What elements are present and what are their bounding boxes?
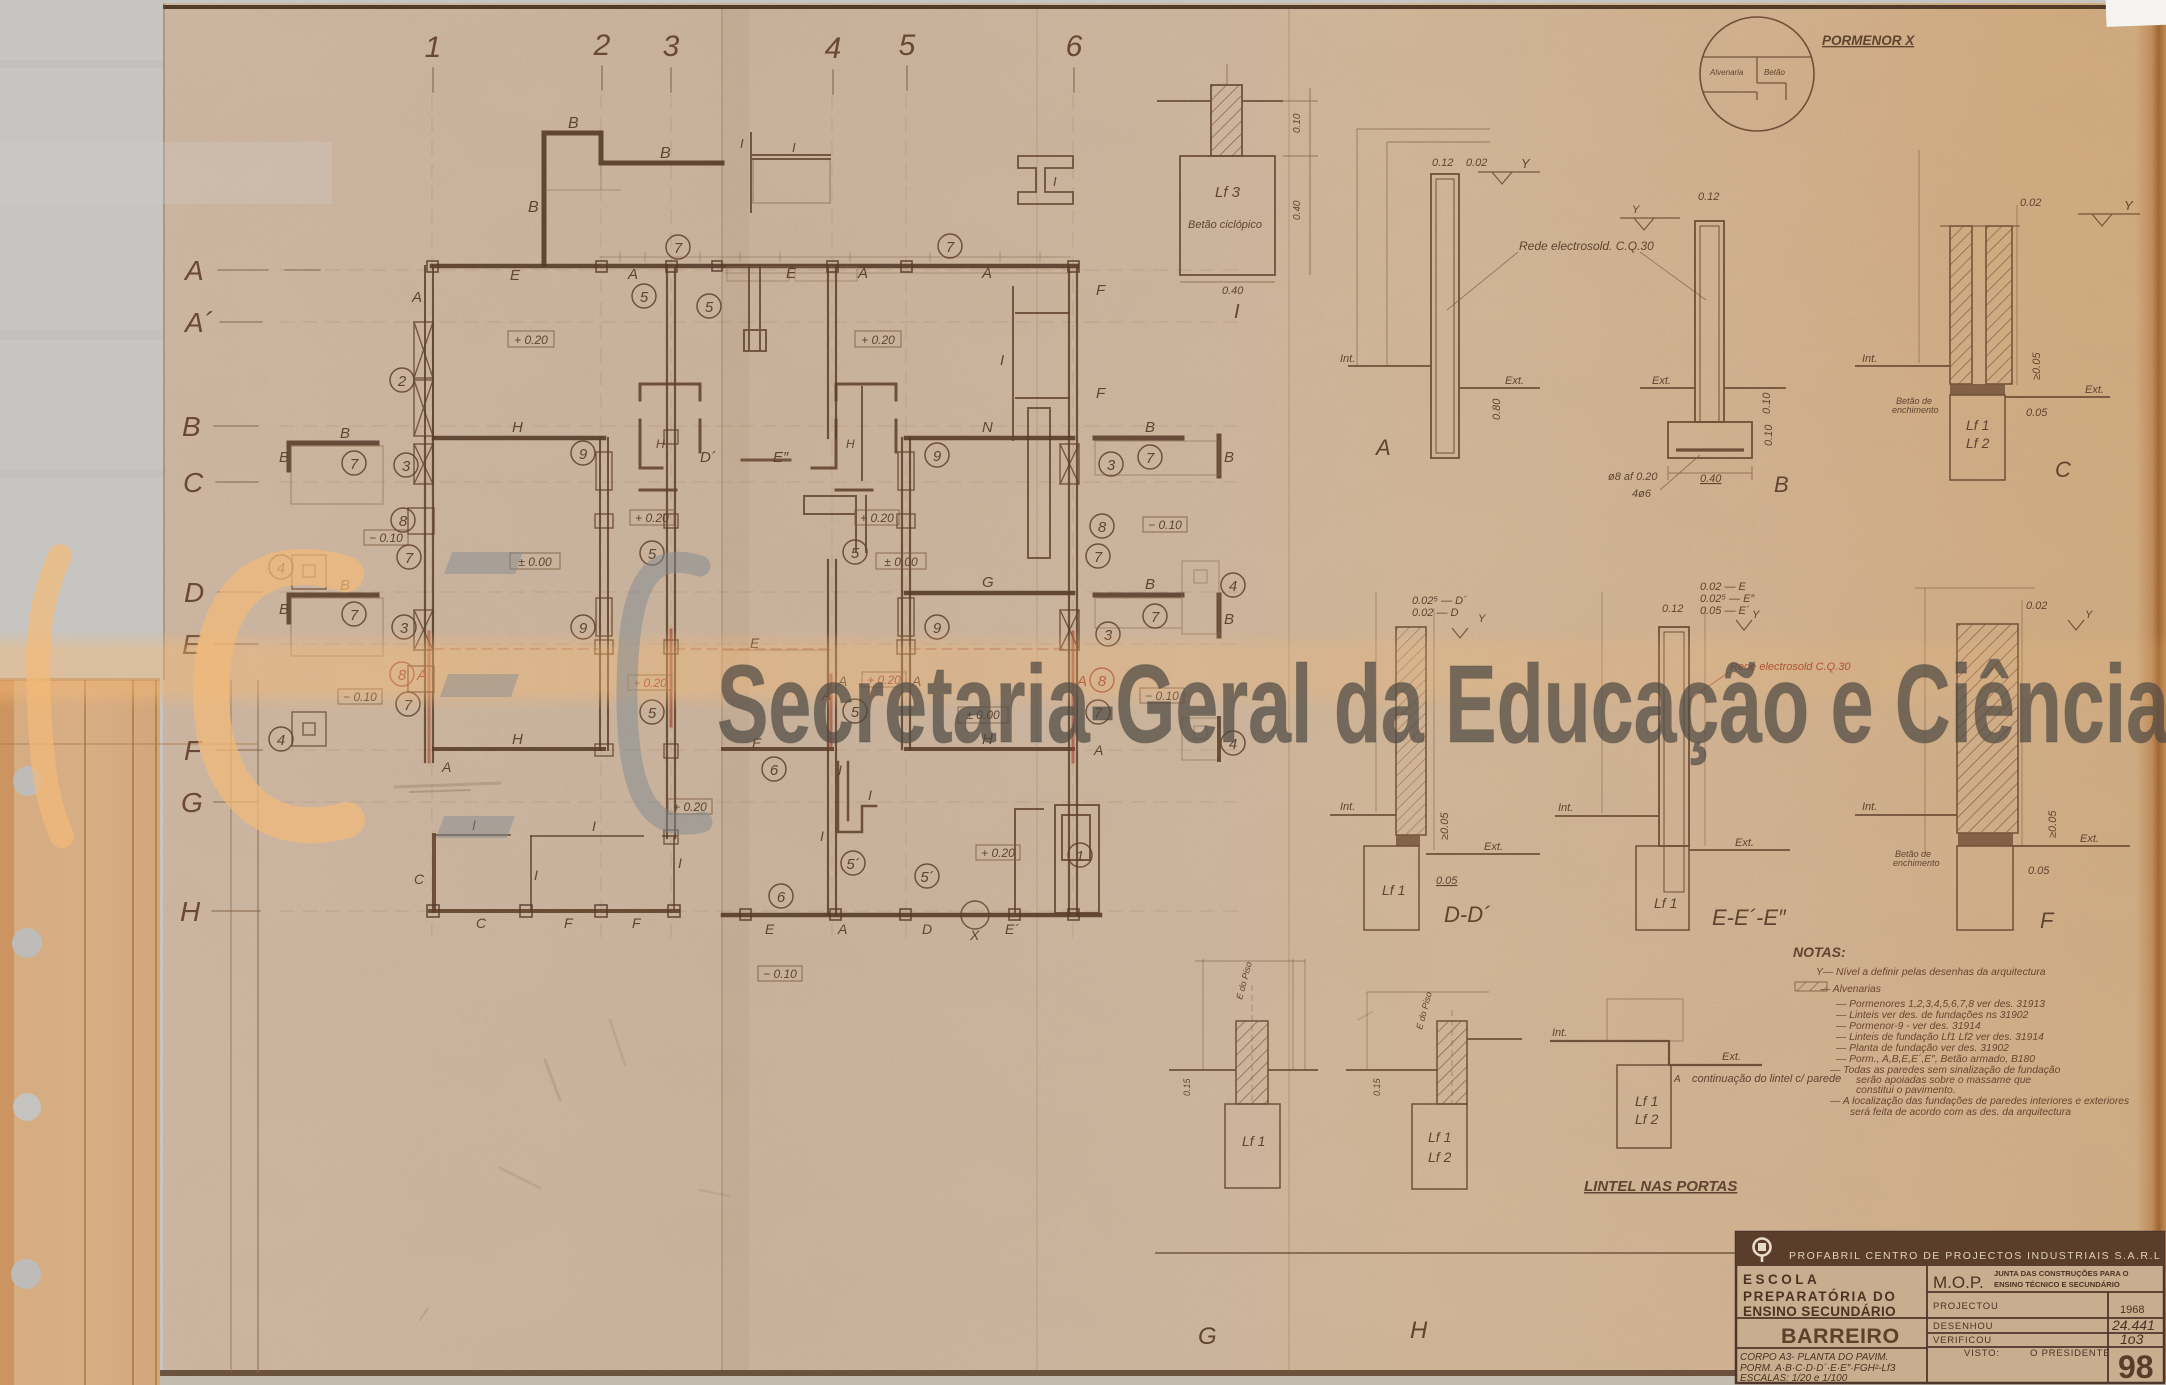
svg-text:5´: 5´ (920, 869, 933, 886)
svg-text:B: B (1145, 419, 1155, 436)
svg-text:− 0.10: − 0.10 (369, 531, 403, 545)
svg-text:Alvenaria: Alvenaria (1709, 68, 1744, 77)
svg-text:D´: D´ (700, 449, 716, 466)
svg-text:0.05: 0.05 (2026, 407, 2048, 419)
svg-text:B: B (528, 199, 539, 216)
svg-text:0.02 — E: 0.02 — E (1700, 581, 1747, 593)
svg-text:— Planta de fundação ver des.: — Planta de fundação ver des. 31902 (1835, 1043, 2009, 1054)
svg-text:+ 0.20: + 0.20 (514, 333, 548, 347)
svg-text:— Porm., A,B,E,E´,E″, Betão ar: — Porm., A,B,E,E´,E″, Betão armado, B180 (1835, 1053, 2035, 1065)
svg-text:5: 5 (899, 29, 916, 62)
svg-text:G: G (982, 574, 994, 591)
svg-text:8: 8 (1098, 519, 1107, 536)
svg-text:Lf 2: Lf 2 (1428, 1149, 1452, 1165)
svg-text:− 0.10: − 0.10 (1148, 518, 1182, 532)
svg-text:Lf 2: Lf 2 (1635, 1111, 1659, 1127)
svg-text:A: A (1673, 1074, 1681, 1085)
svg-text:C: C (476, 915, 487, 931)
svg-text:F: F (2040, 908, 2055, 933)
svg-text:Lf 1: Lf 1 (1635, 1093, 1658, 1109)
svg-text:Ext.: Ext. (1652, 375, 1671, 387)
svg-text:I: I (1053, 174, 1057, 189)
svg-text:Int.: Int. (1862, 801, 1877, 813)
svg-text:9: 9 (933, 448, 942, 465)
svg-text:0.40: 0.40 (1700, 473, 1722, 485)
svg-text:3: 3 (663, 30, 680, 63)
svg-text:7: 7 (946, 239, 955, 256)
svg-text:7: 7 (1094, 549, 1103, 566)
svg-text:− 0.10: − 0.10 (763, 967, 797, 981)
svg-text:— Linteis ver des. de fundaçõe: — Linteis ver des. de fundações ns 31902 (1835, 1010, 2029, 1021)
svg-text:N: N (982, 419, 993, 436)
svg-text:B: B (660, 145, 671, 162)
svg-text:D-D´: D-D´ (1444, 902, 1490, 927)
svg-text:CORPO A3- PLANTA DO PAVIM.: CORPO A3- PLANTA DO PAVIM. (1740, 1352, 1888, 1363)
svg-text:0.12: 0.12 (1662, 603, 1683, 615)
svg-text:— Alvenarias: — Alvenarias (1819, 984, 1881, 995)
svg-text:0.12: 0.12 (1432, 157, 1453, 169)
svg-text:0.05 — E´: 0.05 — E´ (1700, 605, 1750, 617)
svg-text:Betão: Betão (1764, 68, 1785, 77)
svg-text:A: A (857, 265, 868, 282)
svg-text:0.40: 0.40 (1292, 200, 1303, 220)
svg-text:2: 2 (593, 29, 611, 62)
svg-text:7: 7 (350, 456, 359, 473)
svg-text:4: 4 (1229, 578, 1237, 595)
svg-text:A: A (441, 759, 451, 775)
svg-text:— Pormenores 1,2,3,4,5,6,7,8 v: — Pormenores 1,2,3,4,5,6,7,8 ver des. 31… (1835, 999, 2045, 1010)
svg-text:I: I (678, 855, 682, 871)
svg-text:Y— Nível a definir pelas desen: Y— Nível a definir pelas desenhas da arq… (1816, 967, 2046, 978)
svg-text:1o3: 1o3 (2120, 1331, 2144, 1347)
svg-text:0.02⁵ — D´: 0.02⁵ — D´ (1412, 595, 1467, 607)
svg-text:5: 5 (851, 545, 860, 562)
svg-text:Lf 1: Lf 1 (1428, 1129, 1451, 1145)
svg-text:A: A (411, 289, 422, 306)
svg-text:0.40: 0.40 (1222, 285, 1244, 297)
svg-text:ENSINO TÉCNICO E SECUNDÁRIO: ENSINO TÉCNICO E SECUNDÁRIO (1994, 1280, 2120, 1289)
svg-text:I: I (1000, 352, 1004, 369)
svg-text:9: 9 (579, 446, 588, 463)
svg-text:B: B (1224, 611, 1234, 628)
svg-text:4: 4 (825, 32, 842, 65)
svg-text:Int.: Int. (1340, 353, 1355, 365)
svg-text:NOTAS:: NOTAS: (1793, 944, 1846, 960)
svg-text:Int.: Int. (1552, 1027, 1567, 1039)
svg-text:E: E (765, 921, 775, 937)
svg-text:B: B (340, 425, 350, 442)
svg-text:ENSINO SECUNDÁRIO: ENSINO SECUNDÁRIO (1743, 1304, 1896, 1319)
svg-text:F: F (564, 915, 574, 931)
svg-text:enchimento: enchimento (1893, 858, 1940, 868)
svg-text:H: H (512, 731, 523, 748)
svg-text:5´: 5´ (846, 856, 859, 873)
svg-text:0.05: 0.05 (2028, 865, 2050, 877)
svg-text:0.80: 0.80 (1491, 398, 1503, 420)
svg-text:X: X (969, 927, 980, 943)
svg-text:Betão ciclópico: Betão ciclópico (1188, 219, 1262, 231)
svg-text:Y: Y (1632, 204, 1640, 216)
svg-text:G: G (1198, 1323, 1217, 1350)
svg-text:H: H (656, 437, 665, 451)
svg-text:Lf 1: Lf 1 (1242, 1133, 1265, 1149)
svg-text:H: H (180, 896, 201, 927)
svg-text:B: B (1224, 449, 1234, 466)
svg-text:0.02: 0.02 (2026, 600, 2047, 612)
svg-text:E´: E´ (1005, 921, 1019, 937)
svg-text:constitui o pavimento.: constitui o pavimento. (1856, 1085, 1956, 1096)
svg-text:F: F (1096, 282, 1106, 299)
svg-text:JUNTA DAS CONSTRUÇÕES PARA: JUNTA DAS CONSTRUÇÕES PARA O (1994, 1269, 2129, 1278)
svg-text:Y: Y (2085, 609, 2093, 621)
svg-text:Y: Y (1521, 156, 1531, 171)
svg-text:0.15: 0.15 (1182, 1077, 1192, 1096)
svg-text:0.10: 0.10 (1763, 424, 1775, 446)
svg-text:Lf 1: Lf 1 (1382, 882, 1405, 898)
svg-text:B: B (279, 449, 289, 466)
svg-text:≥0.05: ≥0.05 (2047, 810, 2059, 838)
svg-text:será feita de acordo com as de: será feita de acordo com as des. da arqu… (1850, 1107, 2071, 1118)
svg-text:Ext.: Ext. (1484, 841, 1503, 853)
svg-text:continuação do lintel c/ pared: continuação do lintel c/ parede (1692, 1073, 1841, 1085)
svg-text:PROFABRIL CENTRO DE PROJECTOS: PROFABRIL CENTRO DE PROJECTOS INDUSTRIAI… (1789, 1250, 2161, 1262)
svg-text:6: 6 (777, 889, 786, 906)
svg-text:7: 7 (1151, 609, 1160, 626)
svg-text:G: G (181, 787, 203, 818)
svg-text:0.05: 0.05 (1436, 875, 1458, 887)
svg-text:I: I (868, 787, 872, 803)
svg-text:PORMENOR X: PORMENOR X (1822, 33, 1915, 48)
svg-text:Ext.: Ext. (1722, 1051, 1741, 1063)
svg-text:7: 7 (350, 607, 359, 624)
svg-text:A: A (981, 265, 992, 282)
svg-text:A´: A´ (183, 307, 213, 338)
svg-text:B: B (279, 601, 289, 618)
svg-text:4: 4 (277, 732, 285, 749)
svg-text:F: F (632, 915, 642, 931)
svg-text:C: C (2055, 457, 2071, 482)
svg-text:Int.: Int. (1558, 802, 1573, 814)
svg-text:98: 98 (2118, 1349, 2154, 1385)
svg-text:6: 6 (1066, 30, 1083, 63)
svg-text:Int.: Int. (1340, 801, 1355, 813)
svg-text:Secretaria-Geral da Educação e: Secretaria-Geral da Educação e Ciência (717, 643, 2166, 766)
svg-text:A: A (183, 255, 204, 286)
svg-text:2: 2 (397, 373, 407, 390)
svg-text:Ext.: Ext. (2080, 833, 2099, 845)
svg-text:D: D (922, 921, 932, 937)
svg-text:0.10: 0.10 (1292, 113, 1303, 133)
svg-text:C: C (183, 467, 204, 498)
svg-text:I: I (534, 867, 538, 883)
svg-text:Y: Y (2124, 198, 2134, 213)
svg-text:Int.: Int. (1862, 353, 1877, 365)
svg-text:B: B (182, 411, 201, 442)
svg-text:≥0.05: ≥0.05 (2031, 352, 2043, 380)
svg-text:Ext.: Ext. (2085, 384, 2104, 396)
svg-text:I: I (820, 828, 824, 844)
svg-text:± 0.00: ± 0.00 (518, 555, 552, 569)
svg-text:H: H (1410, 1317, 1428, 1344)
svg-text:3: 3 (1107, 457, 1116, 474)
svg-text:A: A (1374, 435, 1391, 460)
svg-text:4ø6: 4ø6 (1632, 488, 1652, 500)
svg-text:— Linteis de fundação Lf1 Lf2: — Linteis de fundação Lf1 Lf2 ver des. 3… (1835, 1032, 2044, 1043)
svg-text:+ 0.20: + 0.20 (635, 511, 669, 525)
svg-text:E: E (786, 265, 797, 282)
svg-text:0.02: 0.02 (1466, 157, 1487, 169)
svg-text:0.10: 0.10 (1761, 392, 1773, 414)
svg-text:0.02 — D: 0.02 — D (1412, 607, 1459, 619)
svg-text:5: 5 (640, 289, 649, 306)
svg-text:A: A (627, 266, 638, 283)
svg-text:1: 1 (425, 31, 442, 64)
svg-text:VERIFICOU: VERIFICOU (1933, 1335, 1992, 1346)
svg-text:H: H (846, 437, 855, 451)
svg-text:B: B (568, 115, 579, 132)
svg-text:7: 7 (674, 240, 683, 257)
svg-text:Ext.: Ext. (1735, 837, 1754, 849)
svg-text:I: I (792, 140, 796, 155)
svg-text:enchimento: enchimento (1892, 405, 1939, 415)
svg-text:Lf 1: Lf 1 (1654, 895, 1677, 911)
svg-text:0.12: 0.12 (1698, 191, 1719, 203)
svg-text:+ 0.20: + 0.20 (981, 846, 1015, 860)
svg-text:3: 3 (402, 458, 411, 475)
svg-text:Ext.: Ext. (1505, 375, 1524, 387)
svg-text:0.02⁵ — E″: 0.02⁵ — E″ (1700, 593, 1755, 605)
svg-text:ø8 af 0.20: ø8 af 0.20 (1608, 471, 1658, 483)
svg-text:— A localização das fundações: — A localização das fundações de paredes… (1829, 1096, 2129, 1107)
svg-text:DESENHOU: DESENHOU (1933, 1321, 1993, 1332)
svg-text:Lf 3: Lf 3 (1215, 184, 1241, 201)
svg-text:+ 0.20: + 0.20 (860, 511, 894, 525)
svg-text:M.O.P.: M.O.P. (1933, 1273, 1984, 1292)
svg-text:ESCALAS: 1/20 e 1/100: ESCALAS: 1/20 e 1/100 (1740, 1373, 1848, 1384)
svg-text:≥0.05: ≥0.05 (1439, 812, 1451, 840)
svg-text:Lf 2: Lf 2 (1966, 435, 1990, 451)
svg-text:A: A (837, 921, 847, 937)
svg-text:H: H (512, 419, 523, 436)
svg-text:7: 7 (1146, 450, 1155, 467)
svg-text:O PRESIDENTE: O PRESIDENTE (2030, 1348, 2110, 1359)
svg-text:BARREIRO: BARREIRO (1781, 1324, 1900, 1348)
svg-text:E-E´-E″: E-E´-E″ (1712, 905, 1787, 930)
svg-text:Y: Y (1478, 613, 1486, 625)
svg-text:5: 5 (705, 299, 714, 316)
svg-text:Rede electrosold. C.Q.30: Rede electrosold. C.Q.30 (1519, 239, 1654, 253)
svg-text:I: I (1234, 301, 1240, 323)
svg-text:0.15: 0.15 (1372, 1077, 1382, 1096)
svg-text:F: F (1096, 385, 1106, 402)
svg-text:PROJECTOU: PROJECTOU (1933, 1301, 1999, 1312)
svg-text:C: C (414, 871, 425, 887)
svg-text:— Pormenor-9 - ver des. 31914: — Pormenor-9 - ver des. 31914 (1835, 1021, 1981, 1032)
svg-text:B: B (1145, 576, 1155, 593)
svg-text:E: E (510, 267, 521, 284)
svg-text:8: 8 (399, 513, 408, 530)
svg-text:LINTEL NAS PORTAS: LINTEL NAS PORTAS (1584, 1178, 1737, 1195)
svg-text:Lf 1: Lf 1 (1966, 417, 1989, 433)
svg-text:I: I (592, 818, 596, 834)
svg-text:B: B (1774, 472, 1789, 497)
svg-text:E″: E″ (773, 449, 789, 466)
svg-text:Y: Y (1752, 609, 1760, 621)
svg-text:1: 1 (1076, 848, 1084, 865)
svg-text:ESCOLA: ESCOLA (1743, 1272, 1820, 1287)
svg-text:7: 7 (405, 550, 414, 567)
svg-text:VISTO:: VISTO: (1964, 1348, 2000, 1359)
svg-text:0.02: 0.02 (2020, 197, 2041, 209)
svg-text:I: I (740, 136, 744, 151)
svg-text:1968: 1968 (2120, 1304, 2144, 1316)
svg-text:PREPARATÓRIA DO: PREPARATÓRIA DO (1743, 1289, 1897, 1304)
svg-text:D: D (184, 577, 204, 608)
svg-text:+ 0.20: + 0.20 (861, 333, 895, 347)
svg-text:± 0.00: ± 0.00 (884, 555, 918, 569)
